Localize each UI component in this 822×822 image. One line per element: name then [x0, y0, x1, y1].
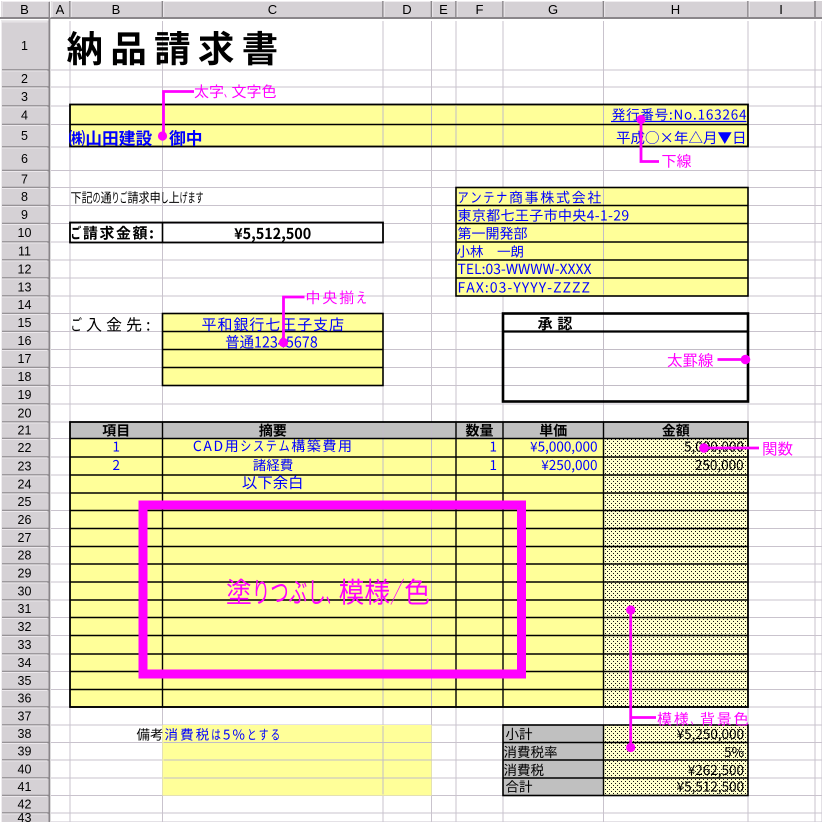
svg-text:29: 29 — [18, 566, 32, 580]
svg-text:31: 31 — [18, 602, 32, 616]
svg-text:26: 26 — [18, 513, 32, 527]
svg-text:9: 9 — [21, 208, 28, 222]
svg-text:3: 3 — [21, 90, 28, 104]
svg-text:42: 42 — [18, 798, 32, 812]
svg-text:A: A — [56, 2, 65, 17]
svg-text:11: 11 — [18, 244, 31, 258]
svg-text:20: 20 — [18, 406, 32, 420]
svg-text:23: 23 — [18, 459, 32, 473]
svg-text:7: 7 — [21, 172, 28, 186]
svg-text:12: 12 — [18, 262, 32, 276]
svg-text:5: 5 — [21, 129, 28, 143]
svg-text:21: 21 — [18, 424, 32, 438]
svg-text:30: 30 — [18, 584, 32, 598]
svg-text:34: 34 — [18, 656, 32, 670]
svg-text:2: 2 — [21, 72, 28, 86]
svg-text:8: 8 — [21, 190, 28, 204]
svg-text:38: 38 — [18, 727, 32, 741]
svg-text:36: 36 — [18, 692, 32, 706]
svg-text:27: 27 — [18, 531, 32, 545]
svg-text:22: 22 — [18, 441, 32, 455]
svg-text:33: 33 — [18, 638, 32, 652]
svg-text:40: 40 — [18, 762, 32, 776]
svg-text:14: 14 — [18, 298, 32, 312]
svg-text:43: 43 — [18, 811, 32, 822]
svg-text:B: B — [112, 2, 121, 17]
svg-text:32: 32 — [18, 620, 32, 634]
svg-text:1: 1 — [21, 39, 28, 53]
svg-text:D: D — [402, 2, 411, 17]
svg-text:19: 19 — [18, 388, 32, 402]
svg-text:17: 17 — [18, 352, 32, 366]
svg-text:15: 15 — [18, 316, 32, 330]
svg-text:C: C — [268, 2, 277, 17]
svg-text:H: H — [671, 2, 680, 17]
svg-text:35: 35 — [18, 674, 32, 688]
svg-text:25: 25 — [18, 495, 32, 509]
svg-text:39: 39 — [18, 745, 32, 759]
svg-text:24: 24 — [18, 477, 32, 491]
svg-text:16: 16 — [18, 334, 32, 348]
svg-text:I: I — [779, 2, 783, 17]
svg-text:F: F — [476, 2, 484, 17]
svg-text:E: E — [439, 2, 448, 17]
svg-text:G: G — [548, 2, 558, 17]
svg-text:10: 10 — [18, 226, 32, 240]
svg-text:28: 28 — [18, 549, 32, 563]
svg-text:6: 6 — [21, 152, 28, 166]
svg-text:18: 18 — [18, 370, 32, 384]
svg-text:13: 13 — [18, 280, 32, 294]
svg-text:4: 4 — [21, 109, 28, 123]
svg-text:37: 37 — [18, 709, 32, 723]
svg-text:41: 41 — [18, 780, 32, 794]
svg-text:B: B — [20, 2, 29, 17]
